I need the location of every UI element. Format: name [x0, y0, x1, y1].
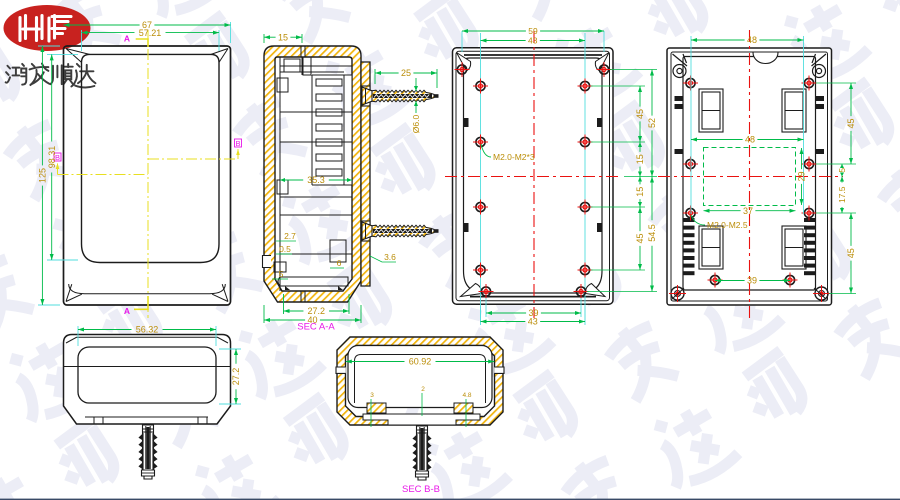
svg-text:125: 125 [38, 168, 48, 183]
svg-text:A: A [124, 34, 130, 44]
svg-text:SEC A-A: SEC A-A [297, 322, 335, 333]
svg-text:56.32: 56.32 [136, 325, 159, 335]
svg-text:39: 39 [747, 276, 757, 286]
svg-text:45: 45 [635, 233, 645, 243]
svg-text:98.31: 98.31 [47, 146, 57, 169]
svg-text:27.2: 27.2 [231, 368, 241, 386]
svg-text:SEC B-B: SEC B-B [402, 484, 440, 495]
svg-text:59: 59 [528, 26, 538, 36]
svg-text:43: 43 [528, 317, 538, 327]
svg-text:0.5: 0.5 [279, 244, 291, 254]
svg-text:45: 45 [635, 109, 645, 119]
svg-text:60.92: 60.92 [409, 357, 432, 367]
svg-text:15: 15 [278, 32, 288, 42]
svg-text:48: 48 [745, 135, 755, 145]
svg-text:37: 37 [743, 206, 753, 216]
svg-text:52: 52 [647, 118, 657, 128]
svg-text:43: 43 [528, 36, 538, 46]
svg-text:45: 45 [846, 118, 856, 128]
svg-text:5: 5 [279, 269, 284, 279]
svg-text:29: 29 [797, 171, 807, 181]
svg-text:3.6: 3.6 [384, 252, 396, 262]
svg-text:54.5: 54.5 [647, 224, 657, 242]
svg-text:A: A [124, 306, 130, 316]
svg-text:35.3: 35.3 [307, 175, 325, 185]
svg-text:M2.0-M2*3: M2.0-M2*3 [493, 152, 535, 162]
svg-text:15: 15 [635, 154, 645, 164]
svg-text:25: 25 [401, 68, 411, 78]
svg-text:57.21: 57.21 [139, 28, 162, 38]
svg-text:45: 45 [846, 248, 856, 258]
svg-text:4.8: 4.8 [462, 392, 471, 399]
svg-text:Ø6.0: Ø6.0 [411, 115, 421, 134]
svg-text:17.5: 17.5 [837, 186, 847, 203]
svg-text:5: 5 [837, 168, 847, 173]
svg-text:6: 6 [337, 258, 342, 268]
svg-text:2.7: 2.7 [284, 231, 296, 241]
svg-text:3: 3 [370, 392, 374, 399]
svg-text:48: 48 [747, 35, 757, 45]
svg-text:15: 15 [635, 187, 645, 197]
svg-text:M2.0-M2.5: M2.0-M2.5 [707, 220, 748, 230]
svg-text:2: 2 [421, 386, 425, 393]
